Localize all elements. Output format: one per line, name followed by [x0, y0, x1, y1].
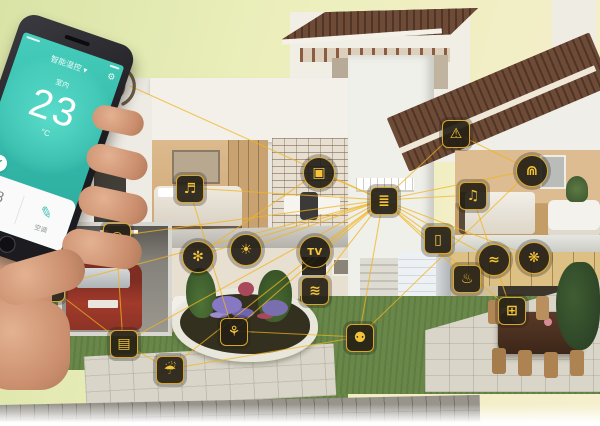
garden-flowers-purple — [212, 296, 242, 314]
phone-speaker — [64, 34, 90, 46]
desk-chair — [300, 192, 318, 220]
house-plant — [566, 176, 588, 202]
gear-icon[interactable]: ⚙ — [106, 71, 117, 84]
garden-flowers — [262, 300, 288, 316]
status-battery — [109, 64, 119, 70]
bed-right — [465, 192, 535, 234]
living-room-frame — [300, 255, 328, 277]
hand-wrist — [0, 300, 70, 390]
dining-chairs-back — [488, 300, 501, 324]
stair-railing — [356, 178, 414, 192]
pillow — [158, 188, 174, 197]
smart-home-scene: ◉⚡▤☔⚘⚉♬▣✻☀TV≋≣▯⚠⋒♫≈❋♨⊞ 智能温控 ▾ ⚙ 室内 23 °C — [0, 0, 600, 426]
home-button[interactable] — [0, 234, 18, 256]
wall-art — [172, 150, 220, 184]
table-flowers — [516, 316, 524, 324]
dining-chairs-front — [492, 348, 506, 374]
garden-flowers-red — [238, 282, 254, 296]
bush — [556, 262, 600, 350]
sofa-right — [548, 200, 600, 238]
left-building-parapet — [150, 78, 348, 142]
license-plate — [88, 300, 118, 308]
bottom-fade — [0, 404, 600, 426]
pillow — [177, 188, 193, 197]
window — [540, 155, 566, 189]
